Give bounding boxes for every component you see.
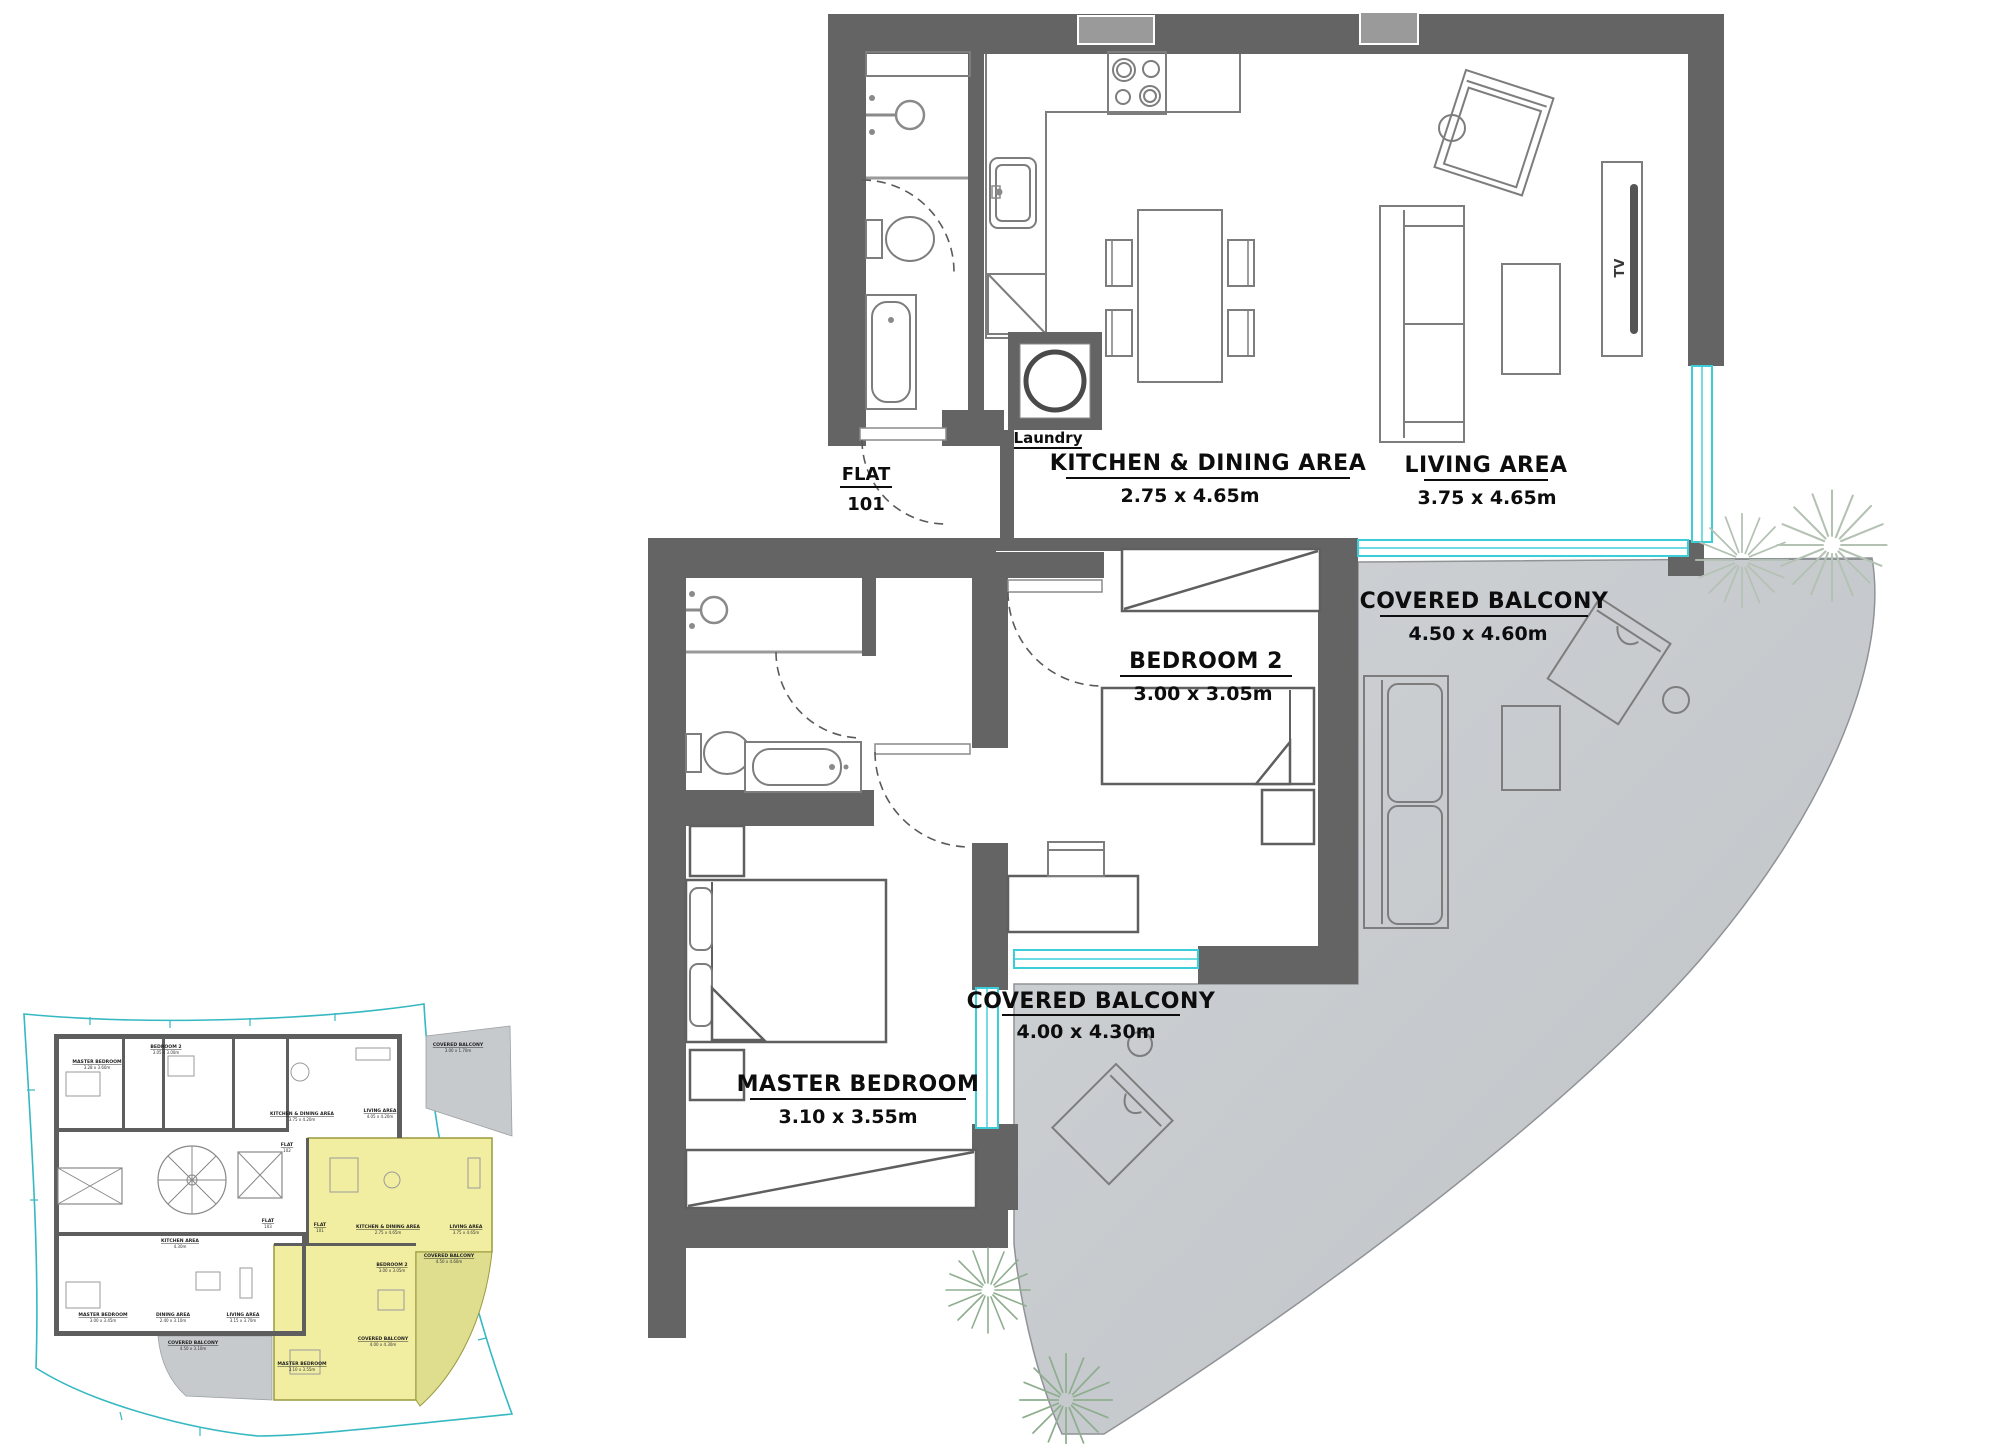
- svg-text:4.50 x 3.10m: 4.50 x 3.10m: [180, 1346, 207, 1351]
- shower-icon: [686, 591, 862, 652]
- svg-text:3.75 x 4.65m: 3.75 x 4.65m: [453, 1230, 480, 1235]
- corner-cabinet: [988, 274, 1046, 334]
- svg-text:3.28 x 3.60m: 3.28 x 3.60m: [84, 1065, 111, 1070]
- coffee-table-icon: [1502, 264, 1560, 374]
- svg-text:COVERED BALCONY: COVERED BALCONY: [1360, 589, 1609, 614]
- svg-text:BEDROOM 2: BEDROOM 2: [1129, 649, 1283, 674]
- svg-text:4.50 x 4.60m: 4.50 x 4.60m: [436, 1259, 463, 1264]
- svg-text:2.75 x 4.65m: 2.75 x 4.65m: [1120, 485, 1259, 507]
- key-flat101-balcony: [416, 1252, 492, 1406]
- sofa-icon: [1380, 206, 1464, 442]
- flat-title: FLAT 101: [840, 464, 892, 515]
- plant-icon: [946, 1248, 1030, 1333]
- svg-text:102: 102: [283, 1148, 291, 1153]
- nightstand-icon: [690, 826, 744, 876]
- tv-icon: [1630, 184, 1638, 334]
- svg-text:3.00 x 3.05m: 3.00 x 3.05m: [1133, 683, 1272, 705]
- bedroom2-door-arc: [1008, 592, 1102, 686]
- laundry-closet: [1008, 332, 1102, 430]
- svg-text:4.30m: 4.30m: [174, 1244, 187, 1249]
- svg-text:3.75 x 4.20m: 3.75 x 4.20m: [289, 1117, 316, 1122]
- storage-icon: [58, 1168, 122, 1204]
- lintel-segment: [1078, 16, 1154, 44]
- laundry-label: Laundry: [1014, 429, 1083, 448]
- stove-icon: [1108, 52, 1166, 114]
- master-bedroom-furniture: [686, 826, 976, 1208]
- svg-text:4.05 x 4.20m: 4.05 x 4.20m: [367, 1114, 394, 1119]
- wardrobe-icon: [1122, 549, 1320, 611]
- desk-icon: [1008, 842, 1138, 932]
- toilet-icon: [866, 217, 934, 261]
- floor-plan-canvas: TV: [0, 0, 2000, 1444]
- sink-icon: [990, 158, 1036, 228]
- walls-top-unit: [828, 12, 1724, 576]
- svg-text:3.00 x 3.05m: 3.00 x 3.05m: [379, 1268, 406, 1273]
- master-bathroom: [686, 591, 862, 792]
- dining-set: [1106, 210, 1254, 382]
- room-label-master: MASTER BEDROOM 3.10 x 3.55m: [737, 1072, 980, 1128]
- svg-text:2.75 x 4.65m: 2.75 x 4.65m: [375, 1230, 402, 1235]
- bathtub-icon: [745, 742, 861, 792]
- key-plan: MASTER BEDROOM 3.28 x 3.60m BEDROOM 2 3.…: [24, 1004, 512, 1436]
- elevator-icon: [238, 1152, 282, 1198]
- svg-text:KITCHEN & DINING AREA: KITCHEN & DINING AREA: [1050, 451, 1366, 476]
- svg-text:3.15 x 3.70m: 3.15 x 3.70m: [230, 1318, 257, 1323]
- svg-text:MASTER BEDROOM: MASTER BEDROOM: [737, 1072, 980, 1097]
- nightstand-icon: [1262, 790, 1314, 844]
- living-furniture: TV: [1380, 70, 1642, 442]
- bathroom-door-arc: [776, 652, 862, 738]
- room-label-kitchen: KITCHEN & DINING AREA 2.75 x 4.65m: [1050, 451, 1366, 507]
- svg-text:3.00 x 3.45m: 3.00 x 3.45m: [90, 1318, 117, 1323]
- svg-text:101: 101: [316, 1228, 324, 1233]
- master-door-arc: [875, 752, 970, 847]
- svg-text:COVERED BALCONY: COVERED BALCONY: [967, 989, 1216, 1014]
- washing-machine-icon: [1026, 352, 1084, 410]
- svg-text:3.75 x 4.65m: 3.75 x 4.65m: [1417, 487, 1556, 509]
- svg-text:103: 103: [264, 1224, 272, 1229]
- svg-text:2.40 x 3.10m: 2.40 x 3.10m: [160, 1318, 187, 1323]
- living-window: [1692, 366, 1712, 542]
- svg-text:3.05 x 3.00m: 3.05 x 3.00m: [153, 1050, 180, 1055]
- flat-number: 101: [847, 494, 885, 515]
- entrance-door-leaf: [860, 428, 946, 440]
- lintel-segment: [1360, 12, 1418, 44]
- svg-text:4.00 x 4.30m: 4.00 x 4.30m: [1016, 1021, 1155, 1043]
- svg-text:Laundry: Laundry: [1014, 429, 1083, 447]
- tv-label: TV: [1613, 259, 1628, 278]
- armchair-icon: [1434, 70, 1553, 195]
- svg-text:4.00 x 4.30m: 4.00 x 4.30m: [370, 1342, 397, 1347]
- svg-text:4.50 x 4.60m: 4.50 x 4.60m: [1408, 623, 1547, 645]
- floor-plan-page: { "main_plan": { "flat": { "label": "FLA…: [0, 0, 2000, 1444]
- svg-text:3.10 x 3.55m: 3.10 x 3.55m: [289, 1367, 316, 1372]
- room-label-bedroom2: BEDROOM 2 3.00 x 3.05m: [1120, 649, 1292, 705]
- kitchen-balcony-window: [1358, 540, 1688, 556]
- flat-label: FLAT: [842, 464, 891, 485]
- bathtub-icon: [866, 295, 916, 409]
- spiral-stairs-icon: [158, 1146, 226, 1214]
- master-door-leaf: [875, 744, 970, 754]
- bedroom2-furniture: [1008, 549, 1320, 932]
- bedroom2-door-leaf: [1008, 580, 1102, 592]
- guest-bathroom: [866, 52, 970, 409]
- wardrobe-icon: [686, 1150, 976, 1208]
- svg-text:LIVING AREA: LIVING AREA: [1404, 453, 1567, 478]
- double-bed-icon: [686, 880, 886, 1042]
- svg-text:3.00 x 1.70m: 3.00 x 1.70m: [445, 1048, 472, 1053]
- tv-unit: TV: [1602, 162, 1642, 356]
- room-label-living: LIVING AREA 3.75 x 4.65m: [1404, 453, 1567, 509]
- toilet-icon: [686, 732, 750, 774]
- svg-text:3.10 x 3.55m: 3.10 x 3.55m: [778, 1106, 917, 1128]
- bedroom2-window: [1014, 950, 1198, 968]
- shower-icon: [866, 95, 968, 178]
- bathroom-niche: [866, 52, 970, 76]
